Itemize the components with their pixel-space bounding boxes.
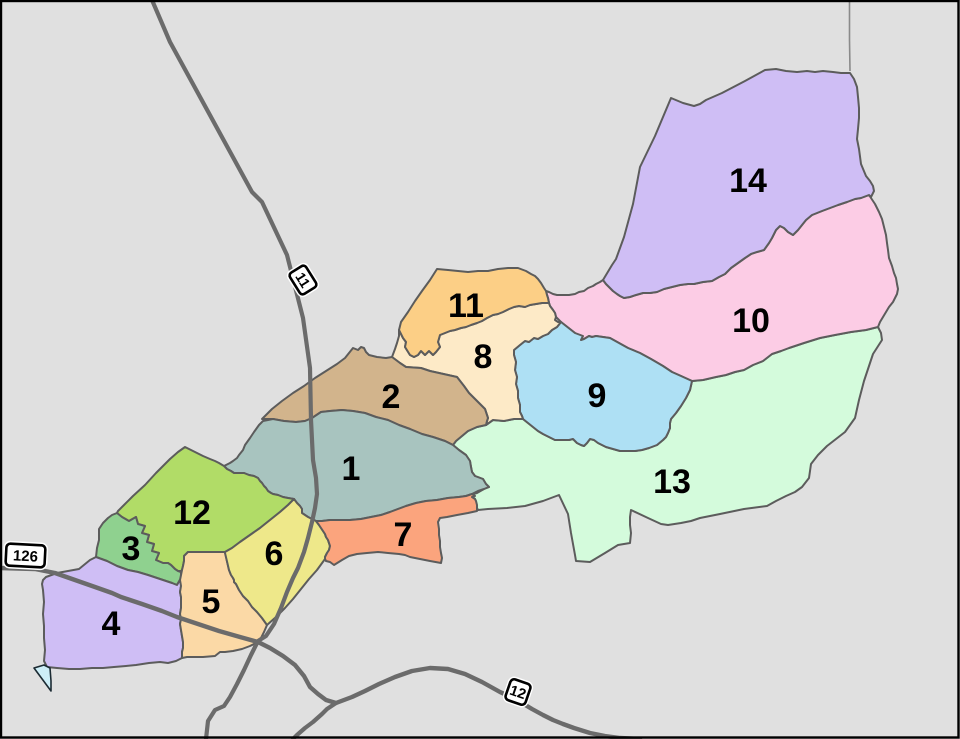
svg-text:6: 6 bbox=[265, 535, 284, 573]
svg-text:1: 1 bbox=[342, 450, 361, 488]
svg-text:13: 13 bbox=[653, 463, 691, 501]
svg-text:12: 12 bbox=[173, 494, 211, 532]
svg-text:126: 126 bbox=[13, 547, 39, 565]
svg-text:9: 9 bbox=[588, 377, 607, 415]
svg-text:10: 10 bbox=[732, 302, 770, 340]
svg-text:4: 4 bbox=[102, 605, 121, 643]
svg-text:2: 2 bbox=[382, 378, 401, 416]
svg-text:11: 11 bbox=[448, 287, 484, 325]
svg-text:3: 3 bbox=[122, 530, 141, 568]
svg-text:5: 5 bbox=[202, 583, 221, 621]
svg-text:8: 8 bbox=[474, 338, 493, 376]
svg-text:7: 7 bbox=[394, 516, 413, 554]
svg-text:14: 14 bbox=[729, 162, 767, 200]
